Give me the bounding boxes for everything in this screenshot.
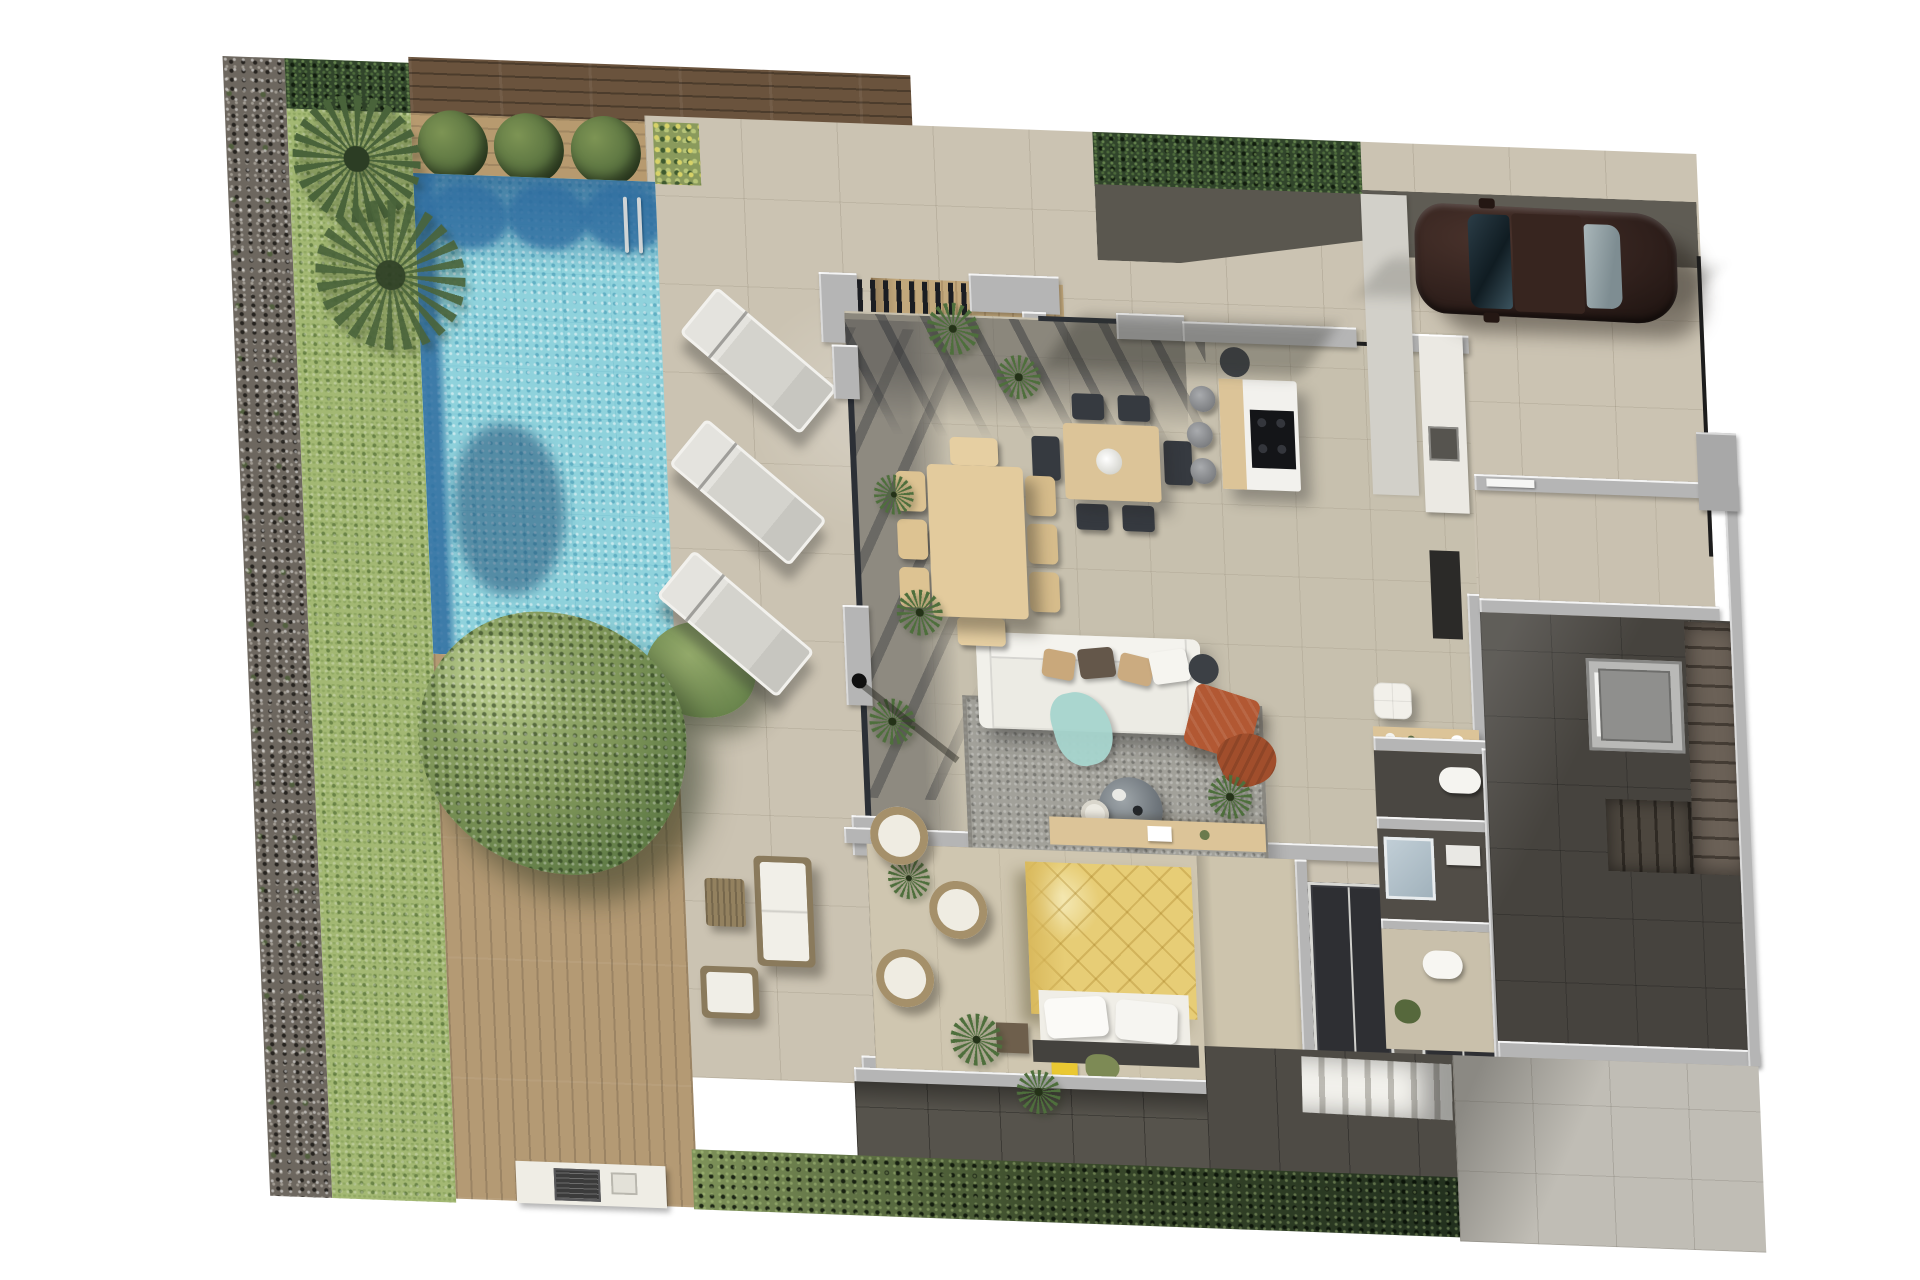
wall-hung-basin	[1438, 767, 1481, 795]
exterior-staircase	[1301, 1056, 1452, 1120]
outdoor-chair	[1027, 524, 1059, 565]
dining-chair	[1163, 441, 1193, 486]
kitchen-island-wood-side	[1218, 379, 1247, 490]
pillow	[1043, 996, 1110, 1039]
dining-chair	[1076, 503, 1109, 530]
car-roof	[1511, 213, 1585, 314]
dining-chair	[1122, 505, 1155, 532]
car-mirror	[1483, 312, 1499, 323]
outdoor-chair	[1025, 475, 1057, 516]
outdoor-chair	[1029, 572, 1061, 613]
entry-porch-wall	[1418, 334, 1469, 514]
cushion	[1076, 647, 1116, 680]
white-pouf	[1373, 682, 1413, 719]
barbecue-grill	[554, 1168, 601, 1202]
entry-gate-box	[1696, 432, 1739, 512]
outdoor-head-chair	[949, 437, 998, 467]
site-plan	[222, 44, 1766, 1253]
pergola-pillar	[968, 273, 1060, 314]
flower-bed	[653, 122, 702, 186]
entry-hall	[1475, 490, 1716, 615]
light-paving-southeast	[1452, 1055, 1766, 1253]
floorplan-render	[0, 0, 1920, 1280]
cushion	[1148, 648, 1192, 685]
outdoor-head-chair	[957, 617, 1006, 647]
car-mirror	[1479, 198, 1495, 209]
toilet	[1422, 950, 1463, 980]
wall	[832, 344, 860, 399]
dining-chair	[1031, 436, 1061, 481]
vanity	[1446, 845, 1481, 866]
pergola-shadow	[1041, 315, 1337, 377]
barbecue-sink	[611, 1172, 638, 1195]
side-door	[1428, 426, 1459, 461]
bathroom	[1381, 929, 1498, 1053]
car-rear-window	[1583, 224, 1623, 309]
staircase-return-flight	[1606, 799, 1695, 874]
pillow	[1115, 999, 1178, 1045]
pool-ladder	[622, 197, 644, 254]
glass-shower	[1383, 837, 1436, 901]
front-door	[1486, 478, 1534, 488]
cooktop	[1250, 410, 1296, 470]
porch-mat	[1429, 550, 1463, 639]
palm-shadow	[452, 422, 569, 596]
outdoor-chair	[897, 519, 929, 560]
lounge-sofa	[753, 855, 816, 967]
dining-chair	[1117, 395, 1150, 422]
car-windshield	[1467, 214, 1513, 310]
lounge-coffee-table	[704, 878, 746, 928]
cushion	[1041, 648, 1076, 682]
elevator-cab	[1598, 668, 1673, 743]
floor-lamp	[851, 673, 867, 689]
lounge-armchair	[700, 966, 760, 1020]
outdoor-dining-table	[927, 464, 1029, 620]
dining-chair	[1071, 393, 1104, 420]
